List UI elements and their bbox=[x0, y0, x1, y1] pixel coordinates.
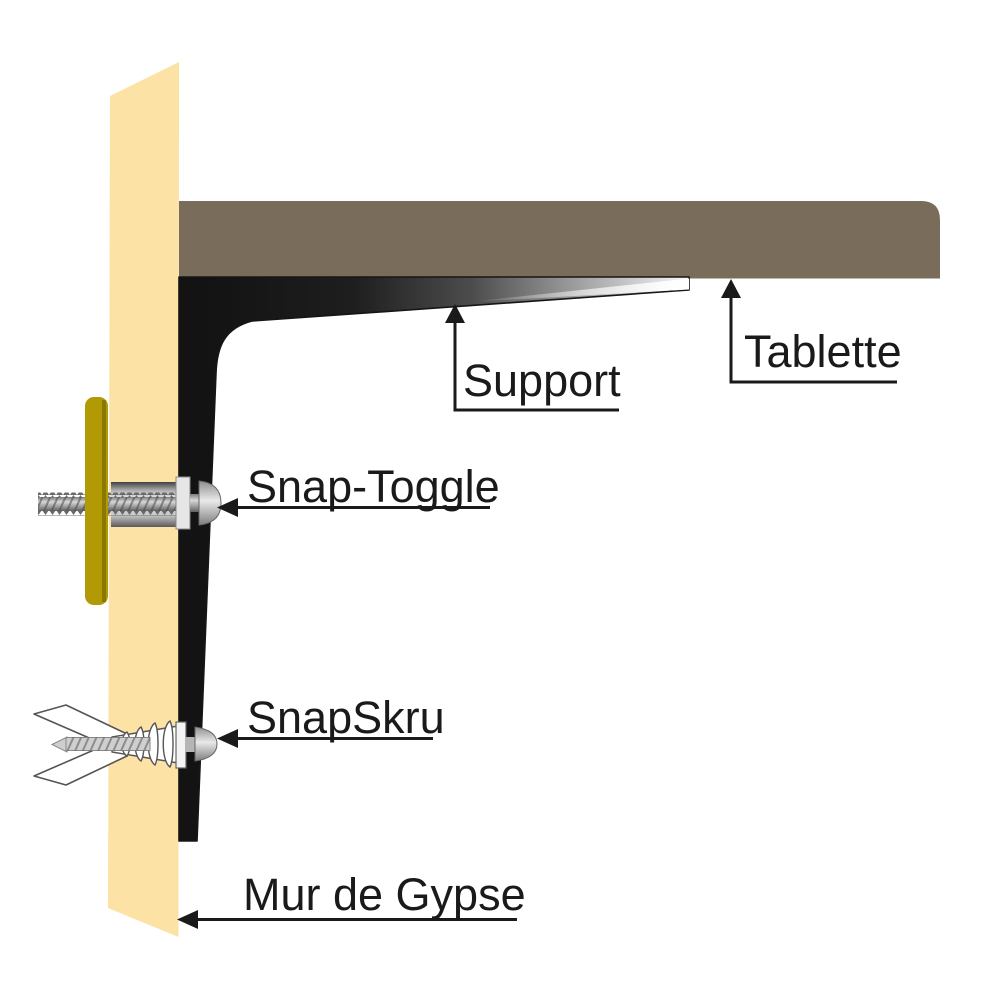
tablette-label: Tablette bbox=[744, 326, 902, 377]
support-label: Support bbox=[463, 355, 621, 406]
wall-label: Mur de Gypse bbox=[243, 869, 526, 920]
shelf-bracket-diagram: Support Tablette Snap-Toggle SnapSkru Mu… bbox=[0, 0, 1000, 1000]
callout-snap-toggle: Snap-Toggle bbox=[217, 461, 500, 517]
snapskru-thread-1 bbox=[163, 721, 173, 767]
snapskru-screw-hatch bbox=[66, 738, 150, 751]
toggle-bolt-thread-bottom bbox=[38, 511, 179, 516]
toggle-bolt-thread-top bbox=[38, 493, 179, 498]
snap-toggle-label: Snap-Toggle bbox=[247, 461, 500, 512]
diagram-canvas: Support Tablette Snap-Toggle SnapSkru Mu… bbox=[0, 0, 1000, 1000]
snapskru-label: SnapSkru bbox=[247, 692, 445, 743]
snapskru-flange bbox=[176, 722, 186, 768]
snapskru-screw-neck bbox=[185, 737, 196, 752]
shelf-board bbox=[179, 201, 940, 279]
callout-snapskru: SnapSkru bbox=[217, 692, 445, 748]
toggle-flange bbox=[176, 477, 190, 529]
toggle-bolt-hatch bbox=[38, 497, 179, 511]
